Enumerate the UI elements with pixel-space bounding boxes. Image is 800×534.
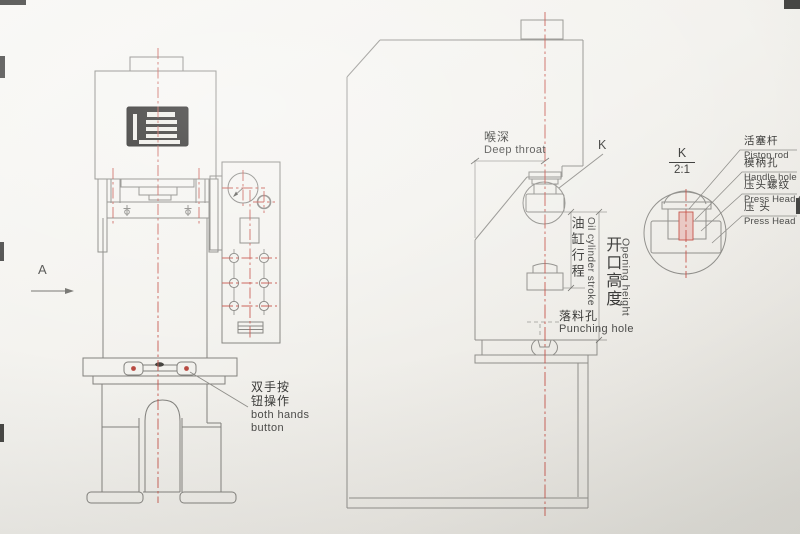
screw-symbol-left (124, 205, 131, 216)
punching-hole-zh: 落料孔 (559, 309, 634, 323)
press-head-zh: 压 头 (744, 201, 796, 214)
panel-buttons (229, 253, 268, 310)
deep-throat-label: 喉深 Deep throat (484, 130, 546, 158)
detail-title-scale: 2:1 (669, 163, 695, 178)
punching-hole-leader (527, 322, 559, 337)
deep-throat-en: Deep throat (484, 144, 546, 157)
piston-rod-zh: 活塞杆 (744, 135, 789, 148)
front-view (83, 57, 248, 503)
view-direction-arrow (31, 288, 74, 294)
oil-cylinder-stroke-en: Oil cylinder stroke (584, 217, 596, 306)
side-view (347, 20, 607, 508)
press-head-en: Press Head (744, 214, 796, 227)
panel-body (222, 162, 280, 343)
side-cap (521, 20, 563, 39)
side-table-top (482, 340, 597, 355)
opening-height-en: Opening height (619, 238, 632, 316)
k-leader (559, 154, 603, 188)
both-hands-label: 双手按 钮操作 both hands button (251, 380, 309, 435)
view-label-a: A (38, 262, 47, 278)
hand-button-right (184, 366, 189, 371)
punching-hole-en: Punching hole (559, 323, 634, 336)
technical-drawing (0, 0, 800, 534)
panel-switch-plate (240, 218, 259, 243)
deep-throat-zh: 喉深 (484, 130, 546, 144)
panel-vent (238, 322, 263, 333)
both-hands-en2: button (251, 422, 309, 435)
oil-cylinder-stroke-zh: 油缸行程 (569, 216, 585, 280)
punching-hole-profile (532, 340, 558, 355)
both-hands-en1: both hands (251, 409, 309, 422)
detail-ref-k: K (598, 138, 606, 153)
both-hands-zh1: 双手按 (251, 380, 309, 394)
control-panel (210, 162, 280, 343)
table-hole (155, 362, 164, 366)
both-hands-zh2: 钮操作 (251, 394, 309, 408)
foot-right (180, 492, 236, 503)
crossbar (107, 202, 210, 218)
side-table-flange (475, 355, 588, 363)
detail-circle-k (523, 182, 565, 224)
hand-button-left (131, 366, 136, 371)
ram-plate-1 (121, 179, 194, 187)
drawing-sheet: A 喉深 Deep throat K 油缸行程 Oil cylinder str… (0, 0, 800, 534)
side-body-outline (347, 40, 583, 508)
press-head-thread-zh: 压头螺纹 (744, 179, 800, 192)
both-hands-leader (190, 372, 248, 407)
ram-plate-3 (149, 195, 171, 200)
press-head-flange (662, 202, 711, 209)
screw-symbol-right (185, 205, 192, 216)
detail-title-ref: K (669, 146, 695, 163)
front-cap (130, 57, 183, 71)
table-support (93, 376, 225, 384)
punching-hole-label: 落料孔 Punching hole (559, 309, 634, 337)
detail-title: K 2:1 (669, 146, 695, 178)
panel-bracket (210, 176, 222, 250)
base-arch (145, 400, 180, 492)
front-grille (127, 107, 188, 146)
work-table (83, 358, 237, 376)
handle-hole-zh: 模柄孔 (744, 157, 797, 170)
press-head-label: 压 头 Press Head (744, 201, 796, 227)
foot-left (87, 492, 143, 503)
